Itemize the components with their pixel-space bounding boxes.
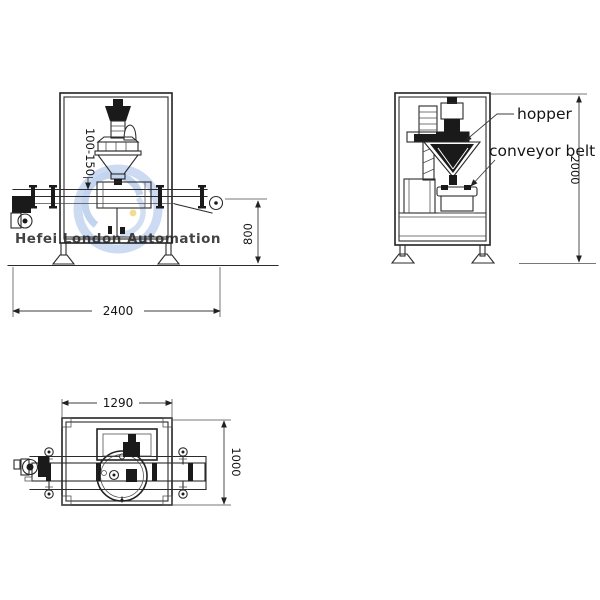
table-hub xyxy=(126,469,137,482)
callout-hopper: hopper xyxy=(465,105,573,141)
dimension-overall-length: 2400 xyxy=(13,267,220,318)
dim-100-150-label: 100-150 xyxy=(83,128,97,176)
hopper-label: hopper xyxy=(517,105,573,123)
auger-motor xyxy=(441,103,463,119)
frame-outer xyxy=(62,418,172,505)
side-filler-assembly xyxy=(404,97,480,213)
leveling-foot-left xyxy=(392,254,414,263)
top-view: 1290 xyxy=(14,396,243,505)
technical-drawing-page: Hefei London Automation xyxy=(0,0,600,600)
frame-outer xyxy=(395,93,490,245)
filler-footprint xyxy=(97,429,157,460)
chain-belt xyxy=(32,463,205,481)
front-view: Hefei London Automation xyxy=(8,93,278,318)
filler-motor xyxy=(105,106,131,121)
idler-roller-axle xyxy=(214,201,218,205)
drive-motor-top xyxy=(14,456,49,481)
footprint-hub xyxy=(123,442,140,457)
container-body xyxy=(441,196,473,211)
filler-dome xyxy=(124,125,136,140)
dim-1290-label: 1290 xyxy=(103,396,134,410)
drive-motor-front xyxy=(11,196,32,228)
auger-body xyxy=(444,119,460,143)
door-handle-left xyxy=(108,226,112,234)
conveyor-leader-line xyxy=(471,160,495,186)
top-frame xyxy=(62,418,172,505)
dim-800-label: 800 xyxy=(241,223,255,245)
door-handle-right xyxy=(120,227,125,234)
hopper-lip xyxy=(95,151,141,155)
hopper-flange xyxy=(98,142,138,151)
filler-column xyxy=(111,121,125,138)
lift-column xyxy=(419,106,437,135)
leveling-foot-left xyxy=(53,255,74,264)
leveling-foot-right xyxy=(472,254,494,263)
rotary-table xyxy=(97,451,147,502)
machine-drawing-svg: Hefei London Automation xyxy=(0,0,600,600)
leveling-foot-right xyxy=(158,255,179,264)
filler-motor-cap xyxy=(113,99,123,106)
dimension-belt-height: 800 xyxy=(225,199,267,263)
logo-accent-dot xyxy=(130,210,137,217)
dim-2400-label: 2400 xyxy=(103,304,134,318)
dim-1000-label: 1000 xyxy=(229,447,243,476)
dimension-frame-width: 1290 xyxy=(62,396,172,417)
filling-tube xyxy=(449,175,457,185)
belt-end-brace xyxy=(175,204,212,213)
side-view: hopper conveyor belt 2000 xyxy=(392,93,596,264)
dim-2000-label: 2000 xyxy=(568,155,582,184)
